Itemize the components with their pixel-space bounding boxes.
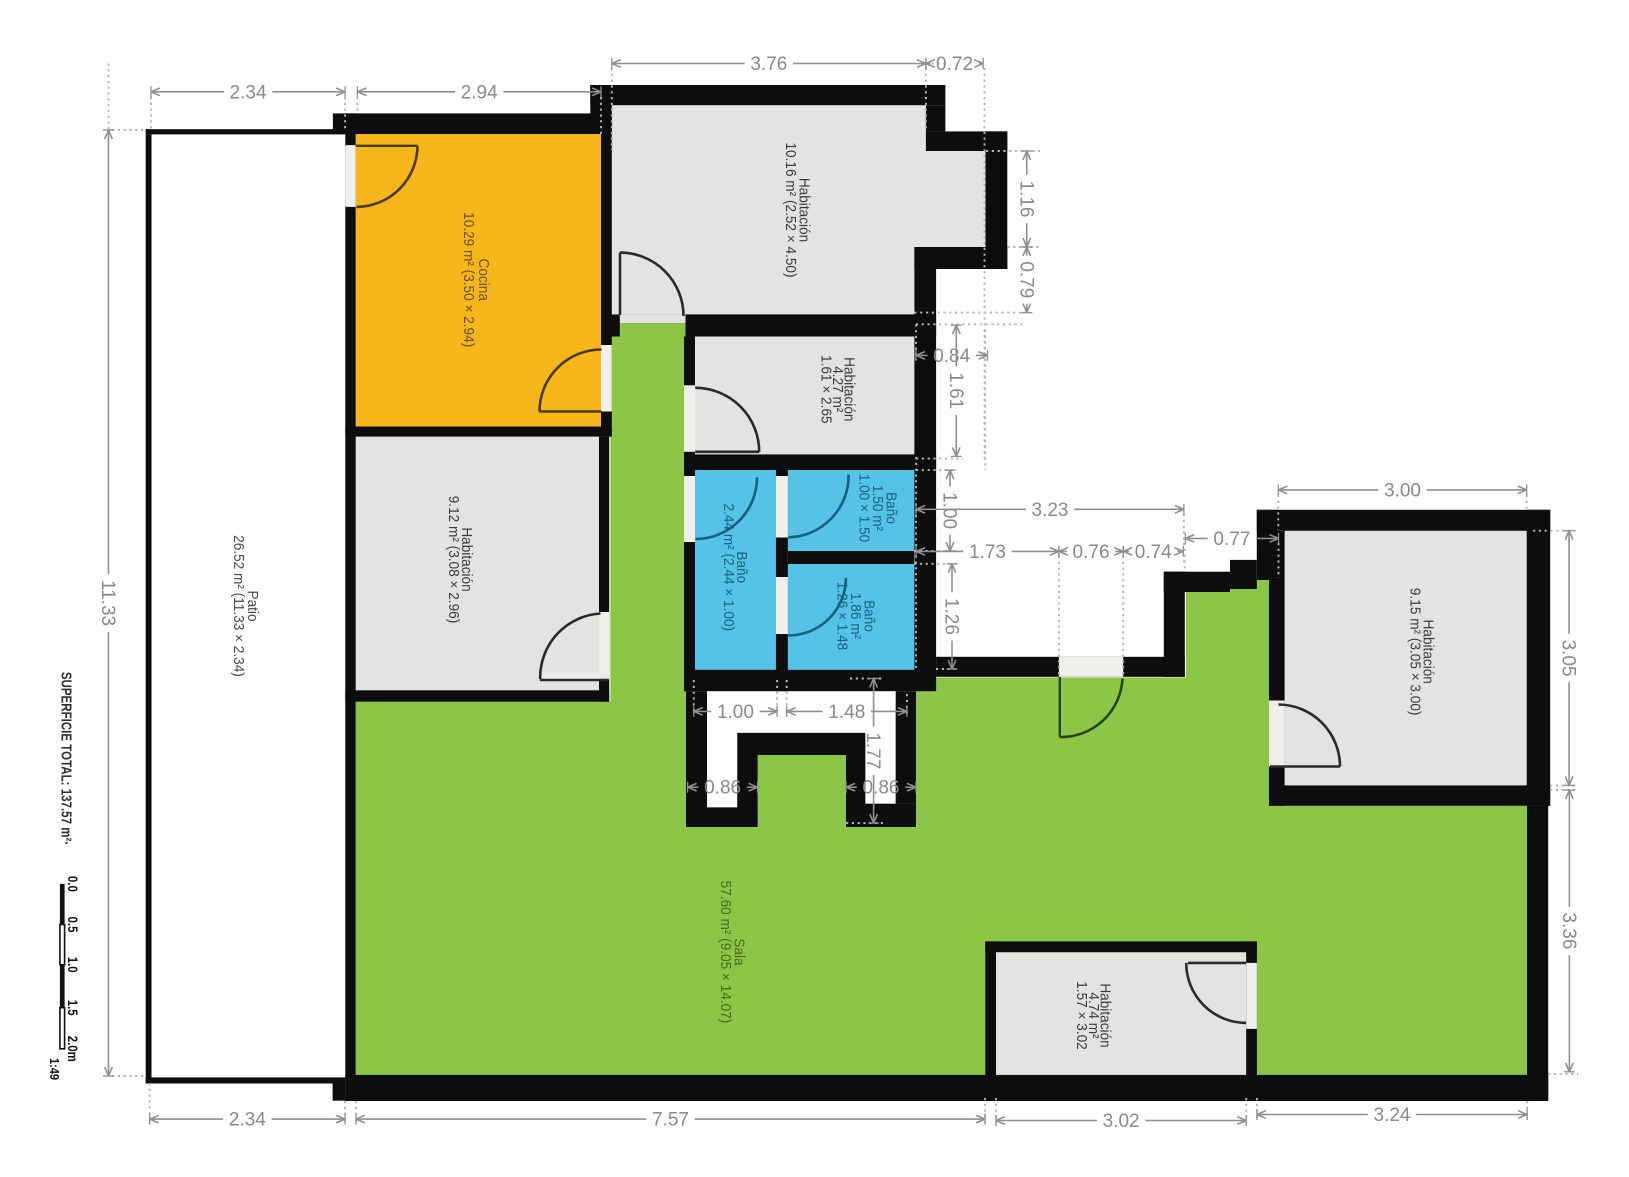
svg-text:3.36: 3.36 xyxy=(1558,912,1579,949)
svg-text:10.16 m² (2.52 × 4.50): 10.16 m² (2.52 × 4.50) xyxy=(782,142,799,277)
svg-text:3.76: 3.76 xyxy=(750,54,787,75)
svg-text:57.60 m² (9.05 × 14.07): 57.60 m² (9.05 × 14.07) xyxy=(717,881,734,1024)
svg-text:1.77: 1.77 xyxy=(862,732,883,769)
svg-text:0.86: 0.86 xyxy=(863,778,900,799)
svg-text:3.02: 3.02 xyxy=(1103,1111,1140,1132)
svg-text:0.72: 0.72 xyxy=(936,54,973,75)
svg-text:2.94: 2.94 xyxy=(461,82,498,103)
svg-text:1.48: 1.48 xyxy=(828,702,865,723)
svg-text:3.24: 3.24 xyxy=(1374,1105,1411,1126)
svg-text:0.86: 0.86 xyxy=(704,778,741,799)
svg-text:3.00: 3.00 xyxy=(1384,480,1421,501)
svg-text:1.61: 1.61 xyxy=(945,372,966,409)
svg-text:1.73: 1.73 xyxy=(969,542,1006,563)
svg-text:2.34: 2.34 xyxy=(230,82,267,103)
svg-text:3.23: 3.23 xyxy=(1032,500,1069,521)
svg-text:1.61 × 2.65: 1.61 × 2.65 xyxy=(817,355,834,424)
svg-text:SUPERFICIE TOTAL: 137.57 m²·: SUPERFICIE TOTAL: 137.57 m²· xyxy=(58,672,75,845)
svg-text:1.0: 1.0 xyxy=(65,957,80,973)
svg-text:1:49: 1:49 xyxy=(47,1058,62,1080)
svg-text:1.00: 1.00 xyxy=(717,702,754,723)
svg-text:1.00: 1.00 xyxy=(939,492,960,529)
svg-text:9.12 m² (3.08 × 2.96): 9.12 m² (3.08 × 2.96) xyxy=(445,496,462,624)
svg-text:0.0: 0.0 xyxy=(65,876,80,892)
svg-text:1.5: 1.5 xyxy=(65,1000,80,1016)
svg-text:1.26 × 1.48: 1.26 × 1.48 xyxy=(833,582,850,651)
svg-text:1.26: 1.26 xyxy=(941,598,962,635)
svg-text:0.76: 0.76 xyxy=(1073,542,1110,563)
svg-text:0.77: 0.77 xyxy=(1213,529,1250,550)
svg-text:0.84: 0.84 xyxy=(933,346,970,367)
svg-text:7.57: 7.57 xyxy=(652,1110,689,1131)
svg-text:11.33: 11.33 xyxy=(97,580,118,626)
svg-text:0.79: 0.79 xyxy=(1015,261,1036,298)
svg-text:10.29 m² (3.50 × 2.94): 10.29 m² (3.50 × 2.94) xyxy=(460,212,477,347)
svg-text:0.5: 0.5 xyxy=(65,917,80,933)
svg-text:1.57 × 3.02: 1.57 × 3.02 xyxy=(1073,981,1090,1050)
svg-text:26.52 m² (11.33 × 2.34): 26.52 m² (11.33 × 2.34) xyxy=(230,535,247,677)
svg-text:0.74: 0.74 xyxy=(1135,542,1172,563)
svg-text:3.05: 3.05 xyxy=(1558,640,1579,677)
svg-text:2.0m: 2.0m xyxy=(65,1036,80,1062)
svg-text:2.44 m² (2.44 × 1.00): 2.44 m² (2.44 × 1.00) xyxy=(720,504,737,632)
svg-text:1.16: 1.16 xyxy=(1015,181,1036,218)
svg-text:2.34: 2.34 xyxy=(229,1110,266,1131)
svg-text:9.15 m² (3.05 × 3.00): 9.15 m² (3.05 × 3.00) xyxy=(1407,588,1424,716)
svg-text:1.00 × 1.50: 1.00 × 1.50 xyxy=(855,474,872,543)
